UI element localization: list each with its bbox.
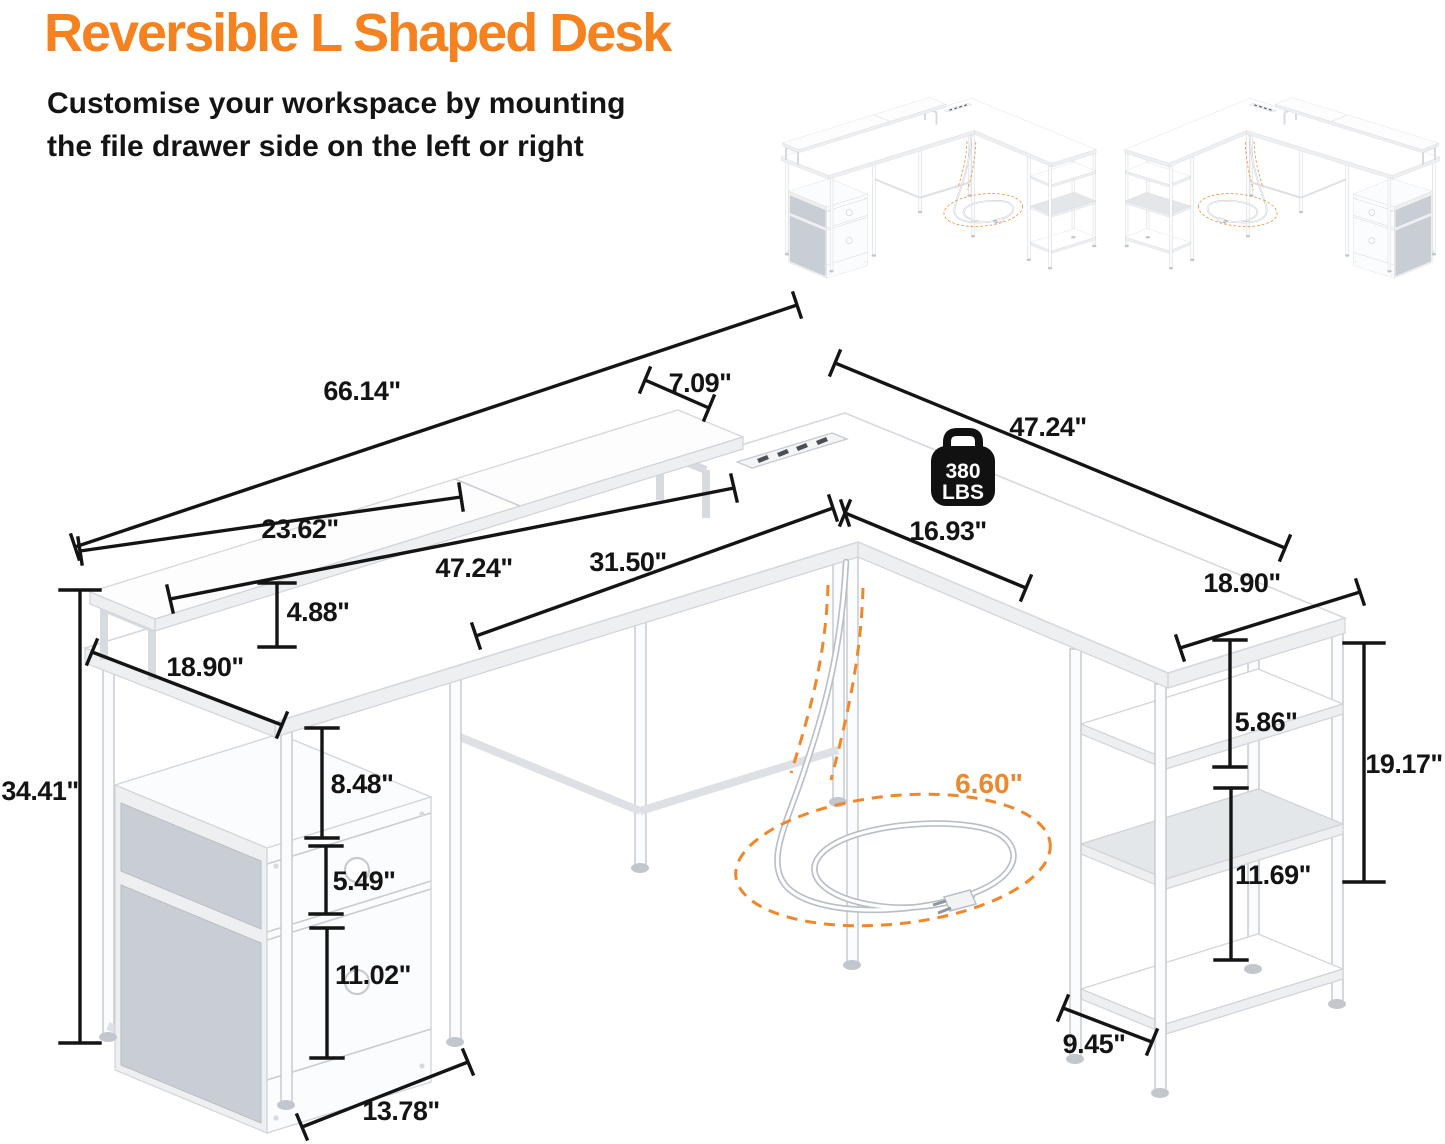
thumbnail-drawer-right: [1125, 98, 1440, 279]
dim-label-shelf-depth: 9.45": [1063, 1029, 1126, 1059]
dim-label-lower-shelf-spacing: 11.69": [1235, 860, 1311, 890]
dim-label-monitor-shelf-height: 4.88": [287, 597, 350, 627]
dim-label-upper-shelf-spacing: 5.86": [1235, 707, 1298, 737]
dim-label-shelf-section-height: 19.17": [1365, 749, 1442, 779]
dim-label-left-desktop-length: 47.24": [435, 553, 512, 583]
dim-label-knee-space-width: 31.50": [589, 547, 666, 577]
config-thumbnails: [781, 98, 1440, 279]
dim-label-monitor-shelf-depth: 7.09": [669, 368, 732, 398]
weight-unit: LBS: [942, 481, 984, 504]
dim-label-drawer-unit-width: 13.78": [362, 1096, 439, 1126]
dim-label-drawer-clearance-height: 8.48": [331, 769, 394, 799]
dim-label-cord-length: 6.60": [955, 768, 1023, 799]
dim-label-file-drawer-height: 11.02": [335, 960, 411, 990]
weight-capacity-badge: 380 LBS: [931, 432, 995, 506]
dim-label-left-desk-depth: 18.90": [166, 652, 243, 682]
dim-label-right-desk-length: 47.24": [1009, 412, 1086, 442]
thumbnail-drawer-left: [781, 98, 1096, 279]
dim-label-monitor-shelf-left-segment: 23.62": [261, 514, 338, 544]
weight-icon: [947, 432, 979, 448]
dim-label-right-inner-edge: 16.93": [909, 516, 986, 546]
dim-label-top-drawer-height: 5.49": [333, 866, 396, 896]
dimension-diagram: 380 LBS 66.14" 7.: [0, 0, 1445, 1144]
dim-label-right-desk-depth: 18.90": [1203, 568, 1280, 598]
product-dimension-page: Reversible L Shaped Desk Customise your …: [0, 0, 1445, 1144]
dim-label-overall-height: 34.41": [1, 776, 78, 806]
dim-label-total-length: 66.14": [323, 376, 400, 406]
weight-value: 380: [945, 460, 980, 483]
